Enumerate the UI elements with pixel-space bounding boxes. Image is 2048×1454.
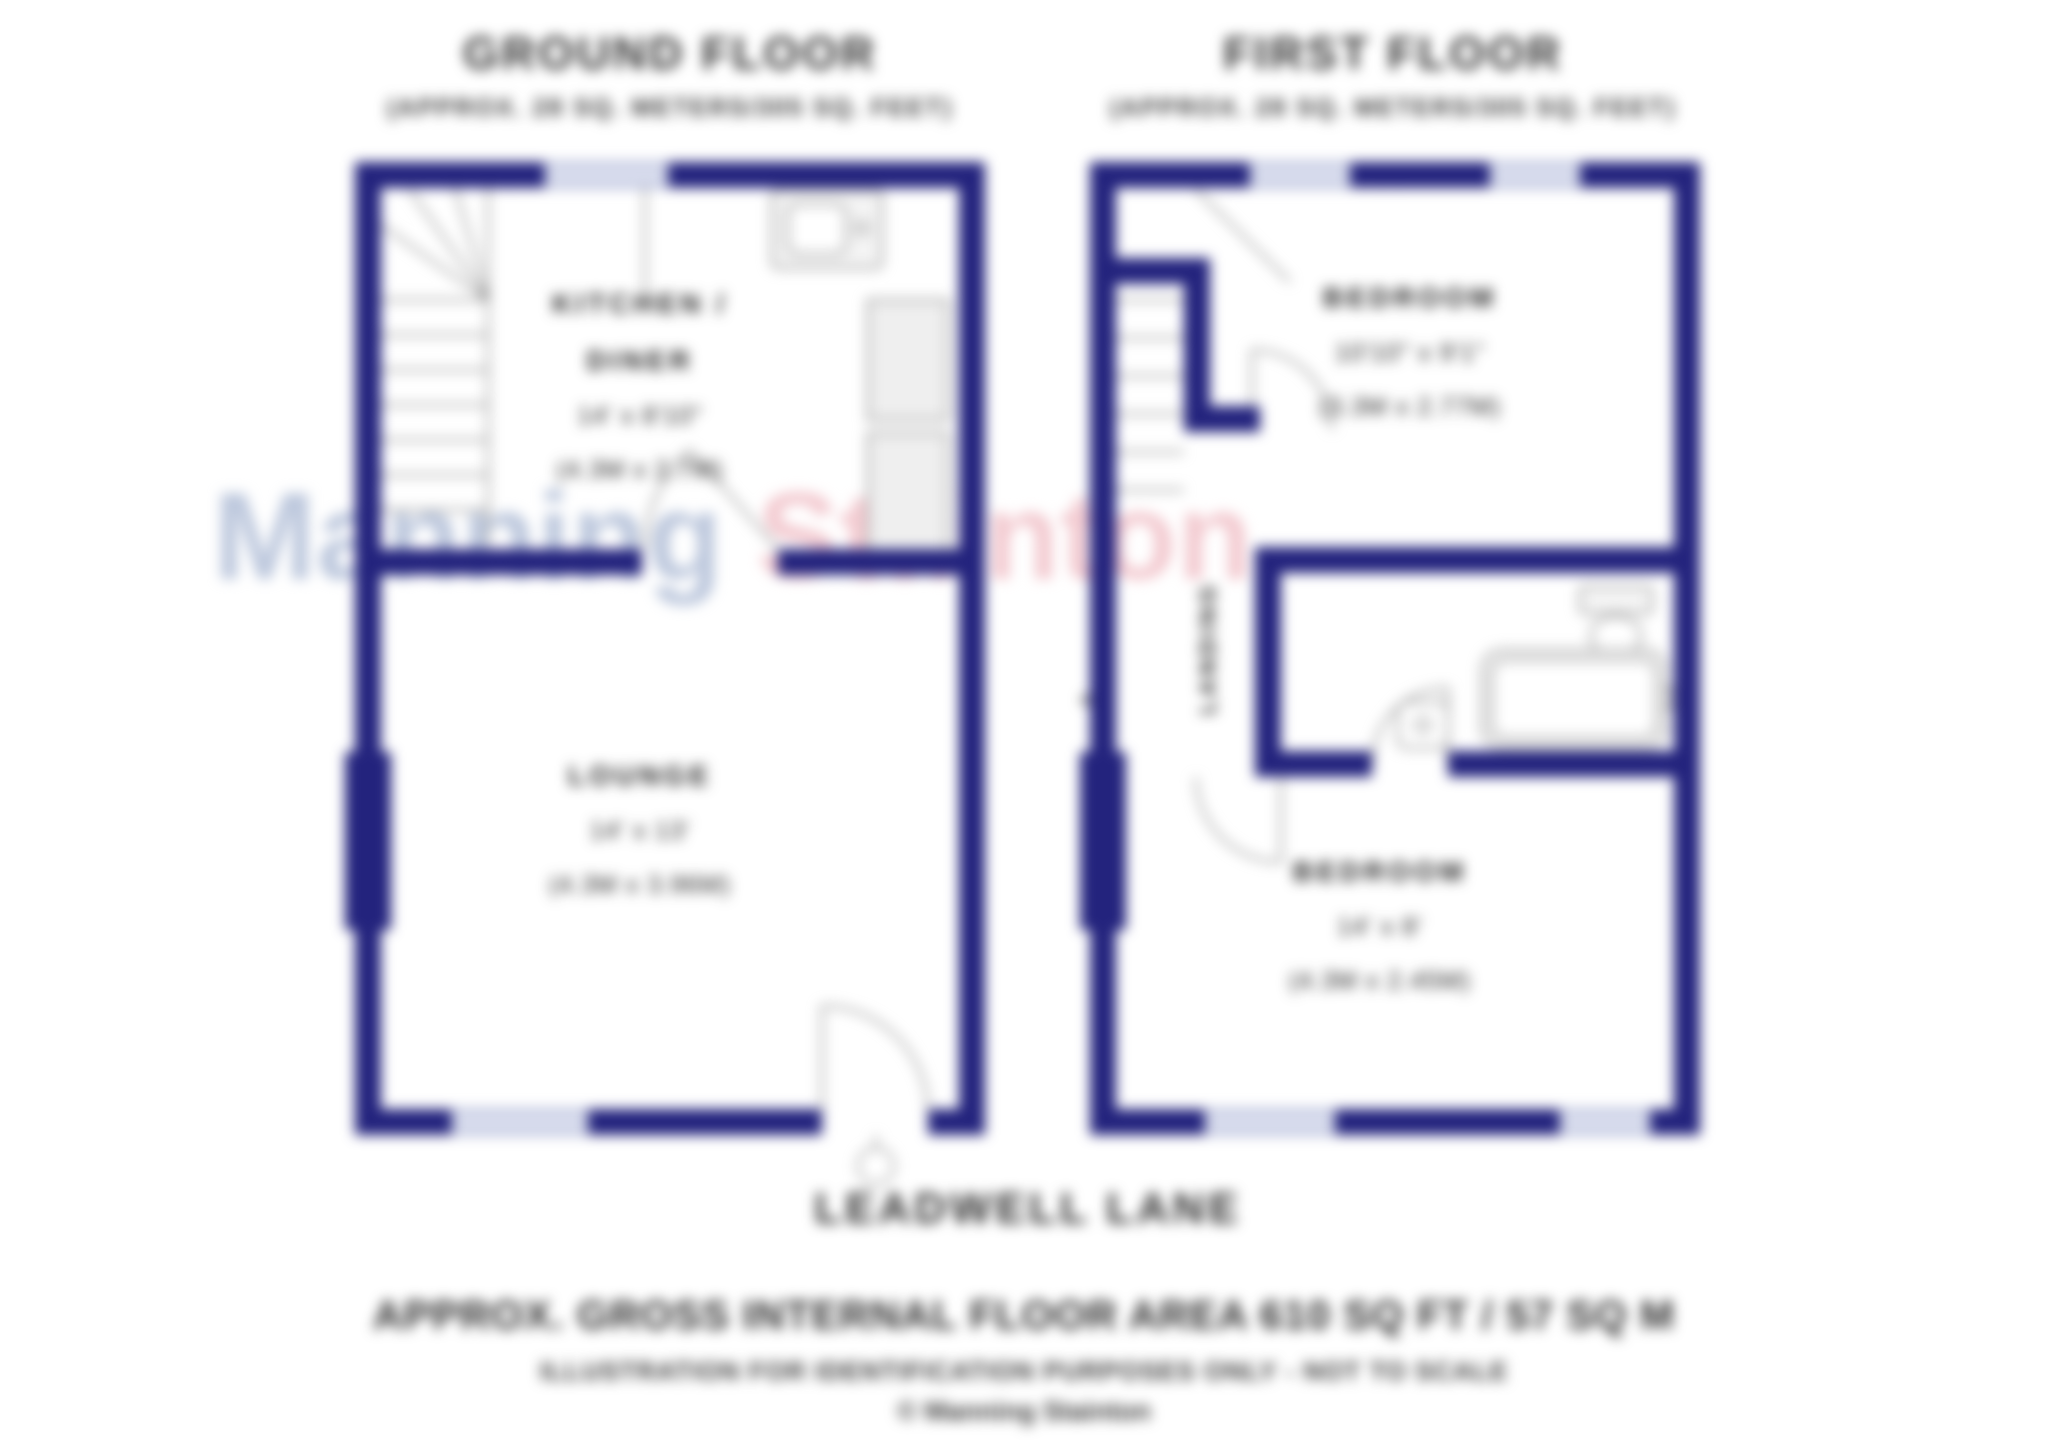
wall-segment	[588, 1109, 822, 1135]
wall-segment	[959, 162, 985, 1135]
room-size-imperial: 14' x 8'10"	[552, 402, 728, 431]
room-name: LOUNGE	[549, 760, 731, 792]
wall-segment	[1350, 162, 1490, 188]
wall-segment	[1090, 162, 1116, 1135]
toilet	[1580, 587, 1652, 656]
wall-segment	[1448, 751, 1674, 777]
door-arc-bedroom-two	[1196, 777, 1281, 862]
lounge-label: LOUNGE 14' x 13' (4.3M x 3.96M)	[549, 760, 731, 900]
copyright-text: © Manning Stainton	[897, 1396, 1151, 1427]
bay-window	[345, 752, 391, 930]
bedroom-two-label: BEDROOM 14' x 8' (4.3M x 2.45M)	[1289, 856, 1471, 996]
wall-segment	[355, 1109, 452, 1135]
door-symbol-circle	[858, 1135, 894, 1184]
bay-window	[1080, 752, 1126, 930]
ground-floor-title: GROUND FLOOR	[463, 26, 877, 80]
window	[1560, 1109, 1650, 1135]
room-name: DINER	[552, 345, 728, 377]
wall-segment	[1674, 162, 1700, 1135]
kitchen-counter	[868, 300, 948, 553]
wall-segment	[355, 162, 381, 1135]
window	[545, 162, 668, 188]
sink	[772, 190, 882, 268]
wall-segment	[1116, 258, 1210, 284]
wall-segment	[1650, 1109, 1700, 1135]
first-floor-title: FIRST FLOOR	[1223, 26, 1563, 80]
disclaimer-text: ILLUSTRATION FOR IDENTIFICATION PURPOSES…	[540, 1356, 1509, 1387]
window	[452, 1109, 588, 1135]
landing-label: LANDING	[1195, 582, 1222, 715]
wall-segment	[1255, 547, 1281, 777]
wall-segment	[355, 549, 642, 575]
first-floor-area-note: (APPROX. 28 SQ. METERS/305 SQ. FEET)	[1110, 94, 1677, 123]
window	[1490, 162, 1580, 188]
wall-segment	[355, 162, 545, 188]
door-arc-front	[822, 1006, 928, 1112]
room-size-metric: (3.3M x 2.77M)	[1319, 393, 1501, 422]
plan-linework	[0, 0, 2048, 1454]
room-size-imperial: 14' x 8'	[1289, 913, 1471, 942]
room-size-metric: (4.3M x 2.7M)	[552, 456, 728, 485]
floorplan-image: GROUND FLOOR (APPROX. 28 SQ. METERS/305 …	[0, 0, 2048, 1454]
ground-floor-area-note: (APPROX. 28 SQ. METERS/305 SQ. FEET)	[387, 94, 954, 123]
wall-segment	[668, 162, 985, 188]
door-line-stairhead	[1196, 190, 1290, 282]
gross-area-summary: APPROX. GROSS INTERNAL FLOOR AREA 610 SQ…	[373, 1292, 1675, 1339]
window	[1205, 1109, 1335, 1135]
room-size-imperial: 10'10" x 9'1"	[1319, 339, 1501, 368]
kitchen-diner-label: KITCHEN / DINER 14' x 8'10" (4.3M x 2.7M…	[552, 288, 728, 485]
wall-segment	[1255, 547, 1700, 573]
wall-segment	[1335, 1109, 1560, 1135]
room-size-metric: (4.3M x 3.96M)	[549, 871, 731, 900]
basin	[1398, 702, 1448, 748]
wall-segment	[1090, 1109, 1205, 1135]
window	[1250, 162, 1350, 188]
wall-segment	[778, 549, 985, 575]
stairs	[1116, 300, 1184, 490]
room-name: KITCHEN /	[552, 288, 728, 320]
street-name: LEADWELL LANE	[814, 1184, 1242, 1234]
room-name: BEDROOM	[1319, 282, 1501, 314]
wall-segment	[1281, 751, 1372, 777]
room-size-imperial: 14' x 13'	[549, 817, 731, 846]
wall-segment	[928, 1109, 985, 1135]
bedroom-one-label: BEDROOM 10'10" x 9'1" (3.3M x 2.77M)	[1319, 282, 1501, 422]
room-name: BEDROOM	[1289, 856, 1471, 888]
bathtub	[1482, 650, 1666, 748]
wall-segment	[1184, 406, 1260, 432]
room-size-metric: (4.3M x 2.45M)	[1289, 967, 1471, 996]
blurred-canvas: GROUND FLOOR (APPROX. 28 SQ. METERS/305 …	[0, 0, 2048, 1454]
